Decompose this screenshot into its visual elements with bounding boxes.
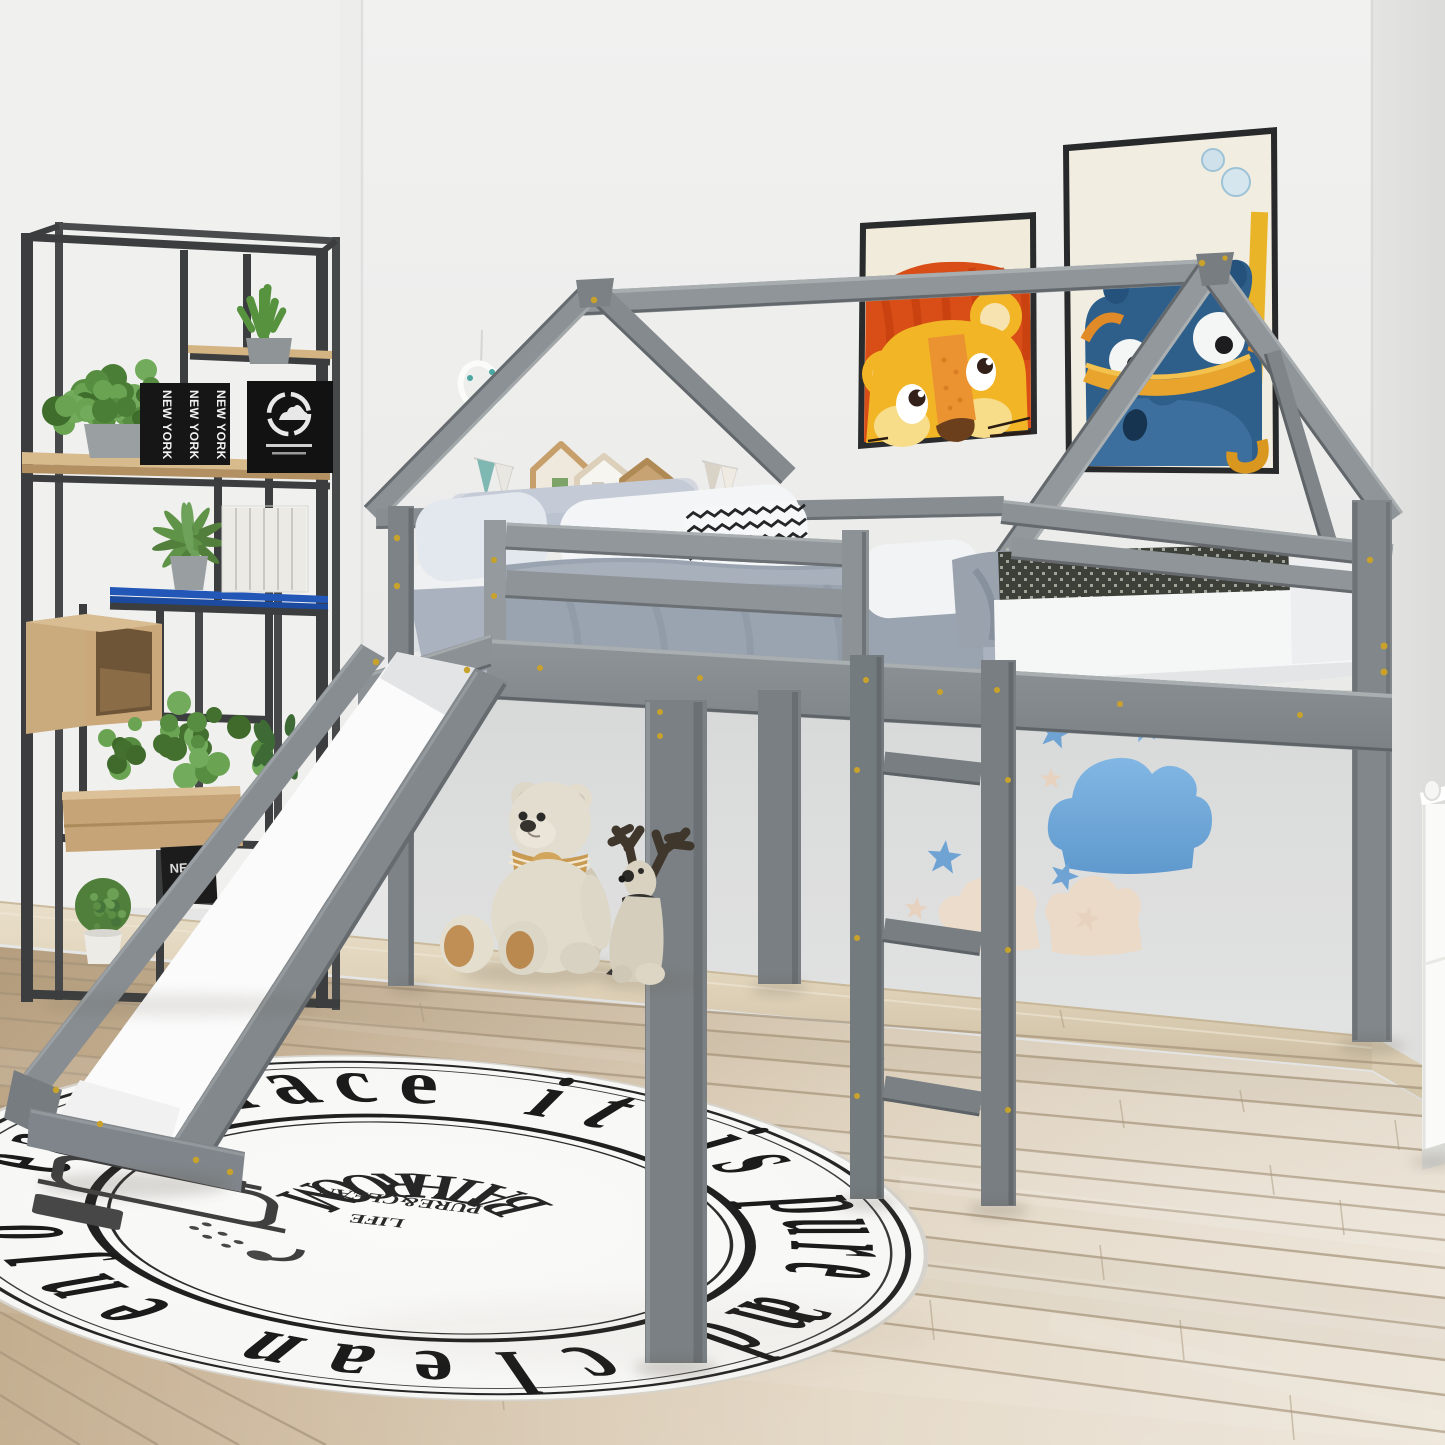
svg-text:o: o [0, 1224, 104, 1241]
svg-text:NEW YORK: NEW YORK [187, 390, 201, 460]
svg-text:NEW YORK: NEW YORK [160, 390, 174, 460]
svg-text:NEW YORK: NEW YORK [214, 390, 228, 460]
svg-text:e: e [398, 1049, 438, 1117]
svg-text:u: u [743, 1218, 944, 1235]
